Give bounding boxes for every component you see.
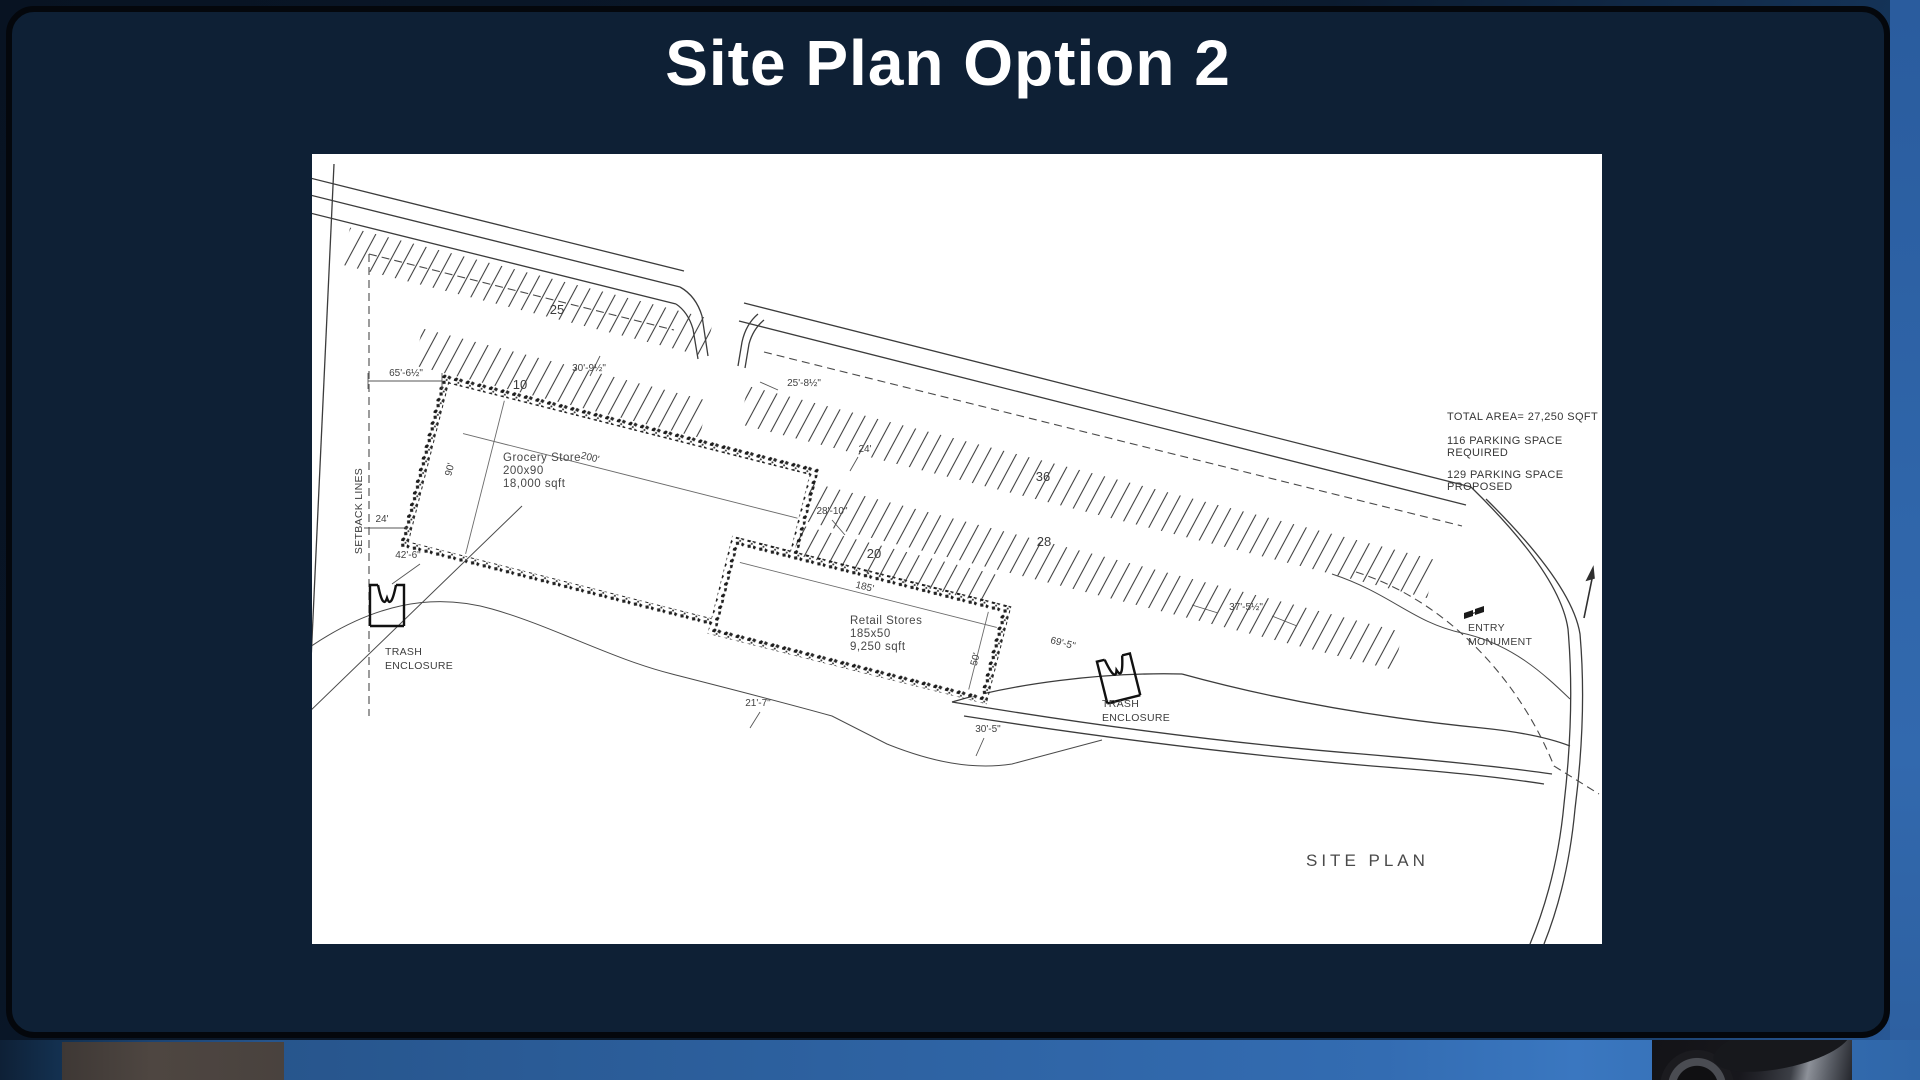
grocery-area: 18,000 sqft bbox=[503, 478, 566, 490]
dim-28-10: 28'-10" bbox=[816, 506, 847, 517]
dim-37-5: 37'-5½" bbox=[1229, 602, 1263, 613]
grocery-size: 200x90 bbox=[503, 465, 544, 477]
site-plan-panel: 200' 90' 185' 50' 69'-5" bbox=[312, 154, 1602, 944]
note-required-1: 116 PARKING SPACE bbox=[1447, 435, 1563, 447]
trash1-line1: TRASH bbox=[385, 646, 422, 658]
dim-69-5: 69'-5" bbox=[1049, 635, 1077, 652]
trash-label-1: TRASH ENCLOSURE bbox=[385, 646, 453, 672]
retail-name: Retail Stores bbox=[850, 615, 922, 627]
backdrop-bottom-strip bbox=[0, 1040, 1920, 1080]
backdrop-right-strip bbox=[1890, 0, 1920, 1080]
note-required-2: REQUIRED bbox=[1447, 447, 1508, 459]
dim-21-7: 21'-7" bbox=[745, 698, 771, 709]
presentation-slide: Site Plan Option 2 bbox=[6, 6, 1890, 1038]
trash2-line2: ENCLOSURE bbox=[1102, 712, 1170, 724]
entry-monument-icon bbox=[1464, 606, 1484, 619]
note-proposed-2: PROPOSED bbox=[1447, 481, 1513, 493]
setback-lines-label: SETBACK LINES bbox=[353, 468, 365, 554]
slide-title: Site Plan Option 2 bbox=[12, 26, 1884, 100]
trash-enclosure-1 bbox=[370, 585, 404, 626]
dim-24b: 24' bbox=[858, 444, 871, 455]
north-arrow-icon bbox=[1584, 568, 1594, 618]
dim-30-5: 30'-5" bbox=[975, 724, 1001, 735]
count-28: 28 bbox=[1037, 534, 1051, 549]
entry-monument-label: ENTRY MONUMENT bbox=[1468, 622, 1533, 648]
site-plan-drawing: 200' 90' 185' 50' 69'-5" bbox=[312, 154, 1602, 944]
count-10: 10 bbox=[513, 377, 527, 392]
trash1-line2: ENCLOSURE bbox=[385, 660, 453, 672]
trash-label-2: TRASH ENCLOSURE bbox=[1102, 698, 1170, 724]
trash2-line1: TRASH bbox=[1102, 698, 1139, 710]
dim-65-6: 65'-6½" bbox=[389, 368, 423, 379]
retail-size: 185x50 bbox=[850, 628, 891, 640]
backdrop-gray-block bbox=[62, 1042, 284, 1080]
dim-30-9: 30'-9½" bbox=[572, 363, 606, 374]
parking-and-buildings: 200' 90' 185' 50' 69'-5" bbox=[312, 228, 1450, 799]
count-20: 20 bbox=[867, 546, 881, 561]
notes-block: TOTAL AREA= 27,250 SQFT 116 PARKING SPAC… bbox=[1447, 411, 1598, 493]
entry-line2: MONUMENT bbox=[1468, 636, 1533, 648]
video-frame: Site Plan Option 2 bbox=[0, 0, 1920, 1080]
dim-25-8: 25'-8½" bbox=[787, 378, 821, 389]
dim-24a: 24' bbox=[375, 514, 388, 525]
note-total-area: TOTAL AREA= 27,250 SQFT bbox=[1447, 411, 1598, 423]
trash-enclosure-2 bbox=[1097, 653, 1140, 703]
grocery-name: Grocery Store bbox=[503, 452, 581, 464]
entry-line1: ENTRY bbox=[1468, 622, 1505, 634]
retail-area: 9,250 sqft bbox=[850, 641, 906, 653]
count-36: 36 bbox=[1036, 469, 1050, 484]
car-photo bbox=[1652, 1040, 1852, 1080]
note-proposed-1: 129 PARKING SPACE bbox=[1447, 469, 1563, 481]
count-25: 25 bbox=[550, 302, 564, 317]
site-plan-caption: SITE PLAN bbox=[1306, 851, 1429, 870]
dim-42-6: 42'-6" bbox=[395, 550, 421, 561]
